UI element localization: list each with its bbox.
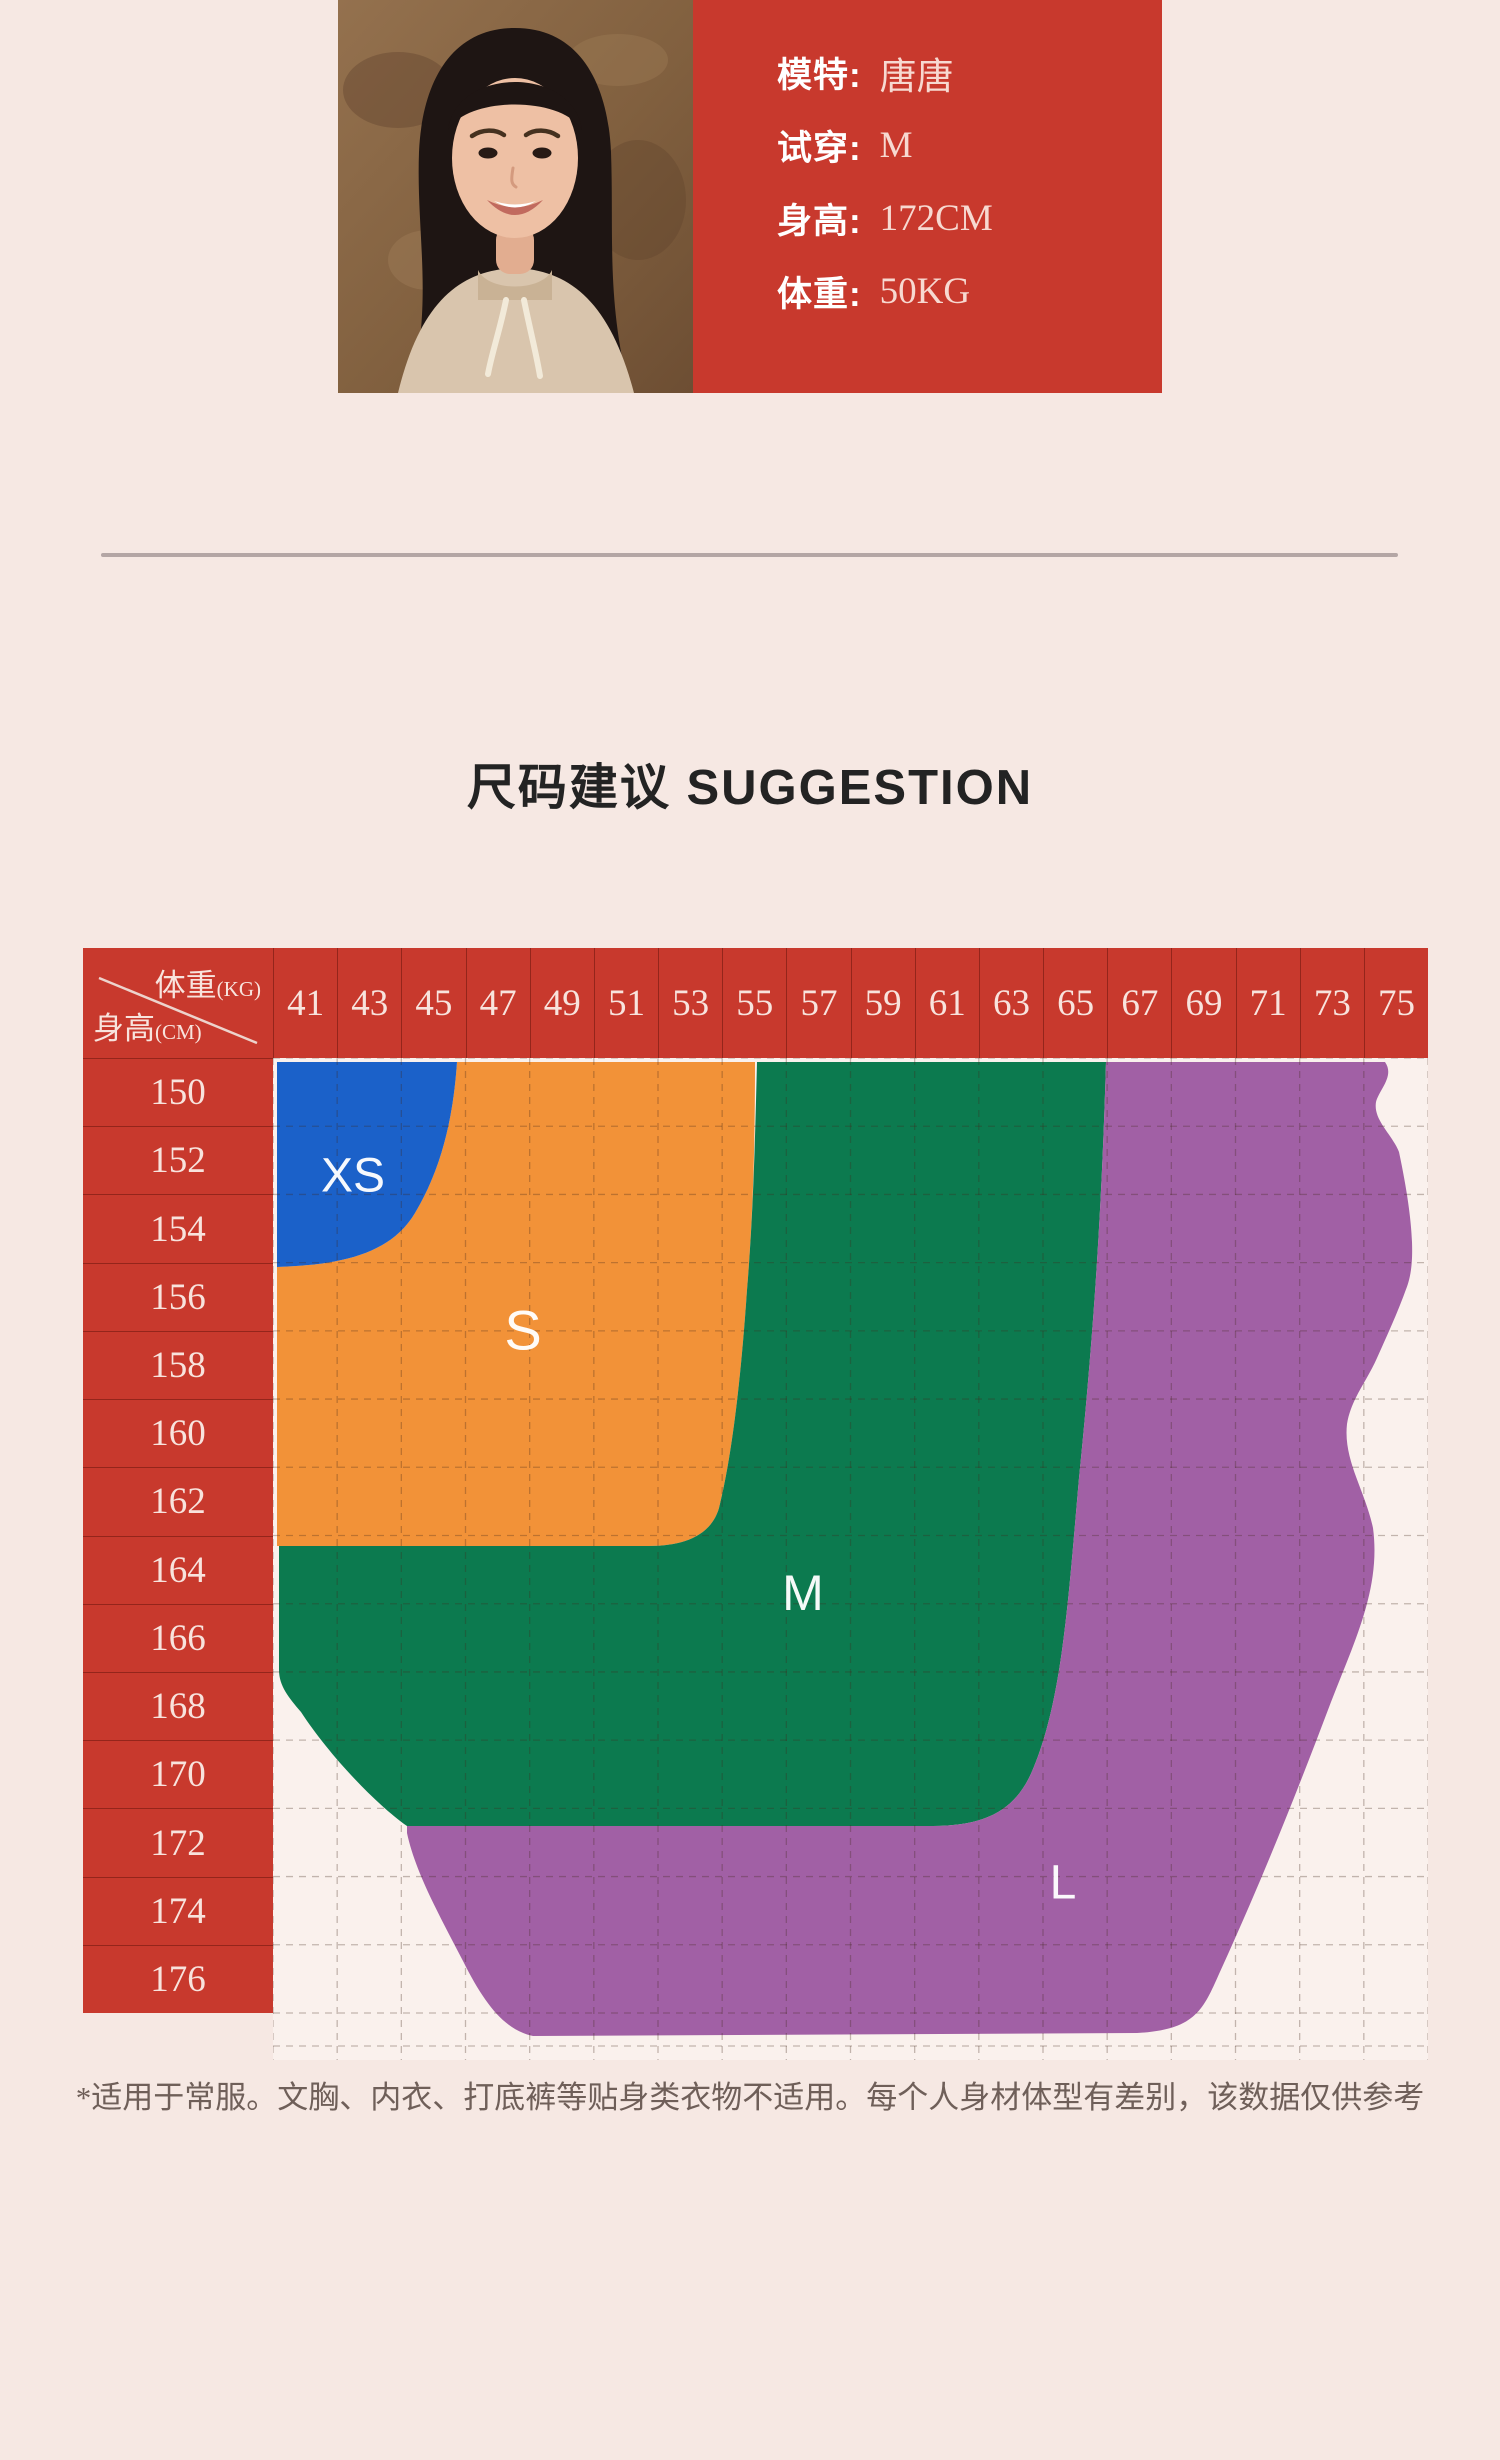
chart-header-row: 体重(KG) 身高(CM) 41434547495153555759616365…: [83, 948, 1428, 1058]
fit-size-value: M: [880, 124, 913, 167]
height-cell: 176: [83, 1945, 273, 2013]
axis-corner-cell: 体重(KG) 身高(CM): [83, 948, 273, 1058]
weight-cell: 51: [594, 948, 658, 1058]
height-cell: 162: [83, 1467, 273, 1535]
weights-row: 414345474951535557596163656769717375: [273, 948, 1428, 1058]
fit-size-label: 试穿:: [777, 120, 862, 171]
region-label-m: M: [782, 1565, 824, 1621]
weight-value: 50KG: [880, 270, 970, 313]
height-value: 172CM: [880, 197, 993, 240]
chart-footnote: *适用于常服。文胸、内衣、打底裤等贴身类衣物不适用。每个人身材体型有差别，该数据…: [0, 2072, 1500, 2117]
product-detail-page: 模特: 唐唐 试穿: M 身高: 172CM 体重: 50KG 尺码建议 SUG…: [0, 0, 1500, 2460]
plot-area: XS S M L: [273, 1058, 1428, 2060]
weight-cell: 53: [658, 948, 722, 1058]
weight-label: 体重:: [777, 266, 862, 317]
x-axis-title: 体重(KG): [155, 960, 261, 1005]
heights-col: 1501521541561581601621641661681701721741…: [83, 1058, 273, 2013]
height-cell: 164: [83, 1536, 273, 1604]
height-cell: 154: [83, 1194, 273, 1262]
height-label: 身高:: [777, 193, 862, 244]
model-photo: [338, 0, 693, 393]
region-label-l: L: [1050, 1857, 1077, 1910]
height-cell: 158: [83, 1331, 273, 1399]
model-label: 模特:: [777, 47, 862, 98]
model-info-row: 体重: 50KG: [777, 255, 1162, 328]
weight-cell: 67: [1107, 948, 1171, 1058]
model-photo-art: [338, 0, 693, 393]
height-cell: 160: [83, 1399, 273, 1467]
model-info-row: 身高: 172CM: [777, 182, 1162, 255]
model-info-card: 模特: 唐唐 试穿: M 身高: 172CM 体重: 50KG: [693, 0, 1162, 393]
weight-cell: 71: [1236, 948, 1300, 1058]
weight-cell: 43: [337, 948, 401, 1058]
weight-cell: 55: [722, 948, 786, 1058]
size-regions: [277, 1062, 1412, 2036]
model-info-row: 模特: 唐唐: [777, 36, 1162, 109]
size-suggestion-chart: 体重(KG) 身高(CM) 41434547495153555759616365…: [83, 948, 1428, 2060]
weight-cell: 61: [915, 948, 979, 1058]
weight-cell: 59: [851, 948, 915, 1058]
model-info-row: 试穿: M: [777, 109, 1162, 182]
weight-cell: 57: [786, 948, 850, 1058]
weight-cell: 41: [273, 948, 337, 1058]
weight-cell: 69: [1171, 948, 1235, 1058]
region-label-s: S: [504, 1299, 541, 1362]
weight-cell: 49: [530, 948, 594, 1058]
y-axis-title: 身高(CM): [93, 1003, 202, 1048]
height-cell: 174: [83, 1877, 273, 1945]
height-cell: 150: [83, 1058, 273, 1126]
weight-cell: 65: [1043, 948, 1107, 1058]
height-cell: 156: [83, 1263, 273, 1331]
height-cell: 152: [83, 1126, 273, 1194]
height-cell: 172: [83, 1808, 273, 1876]
weight-cell: 73: [1300, 948, 1364, 1058]
height-cell: 170: [83, 1740, 273, 1808]
height-cell: 168: [83, 1672, 273, 1740]
section-title: 尺码建议 SUGGESTION: [0, 748, 1500, 819]
model-value: 唐唐: [880, 46, 954, 100]
region-label-xs: XS: [321, 1150, 385, 1203]
weight-cell: 45: [401, 948, 465, 1058]
chart-body: 1501521541561581601621641661681701721741…: [83, 1058, 1428, 2060]
weight-cell: 47: [466, 948, 530, 1058]
height-cell: 166: [83, 1604, 273, 1672]
section-divider: [101, 553, 1398, 557]
weight-cell: 63: [979, 948, 1043, 1058]
weight-cell: 75: [1364, 948, 1428, 1058]
